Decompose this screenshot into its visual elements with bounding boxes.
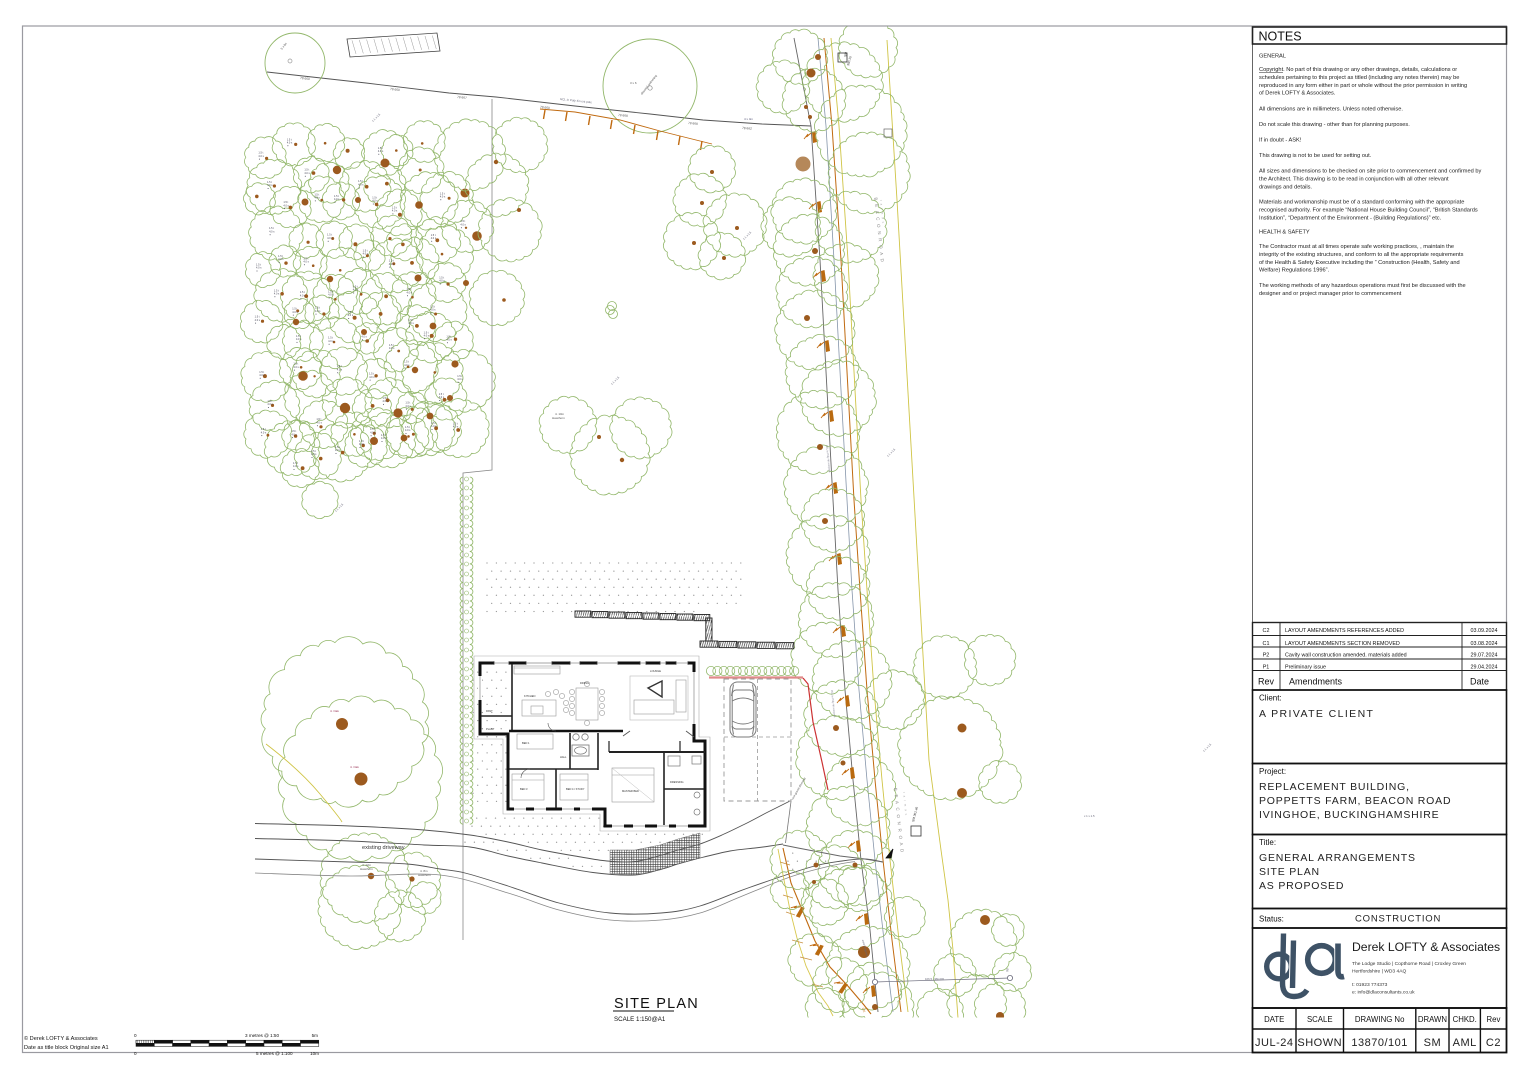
svg-text:4.0 s: 4.0 s — [267, 403, 273, 406]
svg-text:4.0 s: 4.0 s — [259, 374, 265, 377]
svg-text:Title:: Title: — [1259, 838, 1276, 847]
svg-text:4.0 s: 4.0 s — [261, 431, 267, 434]
svg-text:SM: SM — [1424, 1037, 1442, 1049]
svg-text:4.0 s: 4.0 s — [353, 289, 359, 292]
svg-text:Hawthorn: Hawthorn — [552, 416, 565, 420]
svg-text:KITCHEN: KITCHEN — [524, 694, 536, 698]
svg-text:4.0 s: 4.0 s — [296, 338, 302, 341]
svg-text:4.0 s: 4.0 s — [348, 314, 354, 317]
svg-text:This drawing is not to be used: This drawing is not to be used for setti… — [1259, 153, 1372, 159]
svg-text:4 x 4m: 4 x 4m — [744, 117, 754, 121]
svg-text:5 metres @ 1:100: 5 metres @ 1:100 — [256, 1051, 293, 1056]
svg-text:C1: C1 — [1263, 641, 1270, 647]
svg-text:BED 3: BED 3 — [520, 787, 528, 791]
svg-text:All sizes and dimensions to be: All sizes and dimensions to be checked o… — [1259, 169, 1481, 175]
svg-text:13870/101: 13870/101 — [1351, 1037, 1408, 1049]
svg-text:Hawthorn: Hawthorn — [360, 867, 373, 871]
svg-text:4.0 s: 4.0 s — [381, 437, 387, 440]
svg-text:SITE PLAN: SITE PLAN — [614, 996, 699, 1012]
svg-text:4.0 s: 4.0 s — [383, 400, 389, 403]
svg-text:4.0 s: 4.0 s — [405, 405, 411, 408]
svg-text:schedules pertaining to this p: schedules pertaining to this project as … — [1259, 75, 1459, 81]
svg-text:reproduced in any form either: reproduced in any form either in part or… — [1259, 83, 1467, 89]
svg-text:CONSTRUCTION: CONSTRUCTION — [1355, 914, 1441, 925]
svg-text:4.0 s: 4.0 s — [389, 347, 395, 350]
svg-text:DRESSING: DRESSING — [670, 780, 684, 784]
svg-text:Date as title block Original s: Date as title block Original size A1 — [24, 1045, 109, 1051]
svg-text:5m: 5m — [312, 1033, 319, 1038]
svg-text:4.0 s: 4.0 s — [255, 319, 261, 322]
svg-text:IVINGHOE, BUCKINGHAMSHIRE: IVINGHOE, BUCKINGHAMSHIRE — [1259, 809, 1439, 821]
svg-text:106.5 - 98mOD: 106.5 - 98mOD — [925, 977, 944, 981]
svg-text:A PRIVATE CLIENT: A PRIVATE CLIENT — [1259, 708, 1374, 720]
svg-text:4.0 s: 4.0 s — [370, 431, 376, 434]
svg-text:Hawthorn: Hawthorn — [418, 873, 431, 877]
svg-text:designer and or project manage: designer and or project manager prior to… — [1259, 291, 1402, 297]
svg-text:4.0 s: 4.0 s — [269, 230, 275, 233]
svg-text:4.0 s: 4.0 s — [378, 150, 384, 153]
svg-text:4.0 s: 4.0 s — [389, 263, 395, 266]
svg-text:SHOWN: SHOWN — [1297, 1037, 1342, 1049]
svg-text:4.0 s: 4.0 s — [291, 433, 297, 436]
svg-text:3 metres @ 1:50: 3 metres @ 1:50 — [245, 1033, 279, 1038]
svg-text:BED 4 / STUDY: BED 4 / STUDY — [566, 787, 585, 791]
svg-text:4.0 s: 4.0 s — [431, 237, 437, 240]
svg-text:4.0 s: 4.0 s — [315, 310, 321, 313]
svg-text:existing driveway: existing driveway — [362, 845, 405, 851]
svg-text:4.0 s: 4.0 s — [407, 291, 413, 294]
svg-text:Client:: Client: — [1259, 694, 1282, 703]
svg-text:0: 0 — [134, 1051, 137, 1056]
svg-text:DRAWN: DRAWN — [1418, 1015, 1447, 1024]
svg-text:LAYOUT AMENDMENTS REFERENCES A: LAYOUT AMENDMENTS REFERENCES ADDED — [1285, 628, 1404, 634]
svg-text:© Derek LOFTY & Associates: © Derek LOFTY & Associates — [24, 1035, 98, 1042]
svg-text:78 662: 78 662 — [742, 126, 752, 131]
svg-text:4.0 s: 4.0 s — [300, 294, 306, 297]
svg-text:3 x 6: 3 x 6 — [630, 81, 637, 85]
svg-text:4.0 s: 4.0 s — [359, 443, 365, 446]
svg-text:GENERAL ARRANGEMENTS: GENERAL ARRANGEMENTS — [1259, 852, 1416, 864]
svg-text:29.07.2024: 29.07.2024 — [1471, 652, 1498, 658]
svg-text:C2: C2 — [1263, 628, 1270, 634]
svg-text:4.0 s: 4.0 s — [256, 267, 262, 270]
svg-text:4.0 s: 4.0 s — [293, 366, 299, 369]
svg-text:Project:: Project: — [1259, 767, 1286, 776]
svg-text:4.0 s: 4.0 s — [408, 322, 414, 325]
svg-text:4.0 s: 4.0 s — [440, 196, 446, 199]
svg-text:The Lodge Studio | Copthorne: The Lodge Studio | Copthorne Road | Crox… — [1352, 961, 1466, 967]
svg-text:of the Health & Safety Executi: of the Health & Safety Executive includi… — [1259, 260, 1460, 266]
svg-text:Rev: Rev — [1487, 1015, 1501, 1024]
svg-text:MASTER BED: MASTER BED — [622, 789, 639, 793]
svg-text:4.0 s: 4.0 s — [405, 429, 411, 432]
svg-text:NOTES: NOTES — [1259, 30, 1302, 44]
svg-text:4.0 s: 4.0 s — [363, 253, 369, 256]
svg-text:Copyright. No part of this dra: Copyright. No part of this drawing or an… — [1259, 67, 1457, 73]
svg-text:03.09.2024: 03.09.2024 — [1471, 628, 1498, 634]
svg-text:SITE PLAN: SITE PLAN — [1259, 866, 1320, 878]
svg-text:x 1 x 1.5: x 1 x 1.5 — [1084, 814, 1095, 818]
svg-text:Hertfordshire | WD3 4AQ: Hertfordshire | WD3 4AQ — [1352, 969, 1406, 975]
svg-text:Materials and workmanship must: Materials and workmanship must be of a s… — [1259, 200, 1464, 206]
svg-text:4.0 s: 4.0 s — [439, 280, 445, 283]
svg-text:All dimensions are in millimet: All dimensions are in millimeters. Unles… — [1259, 107, 1403, 113]
svg-text:Derek LOFTY & Associates: Derek LOFTY & Associates — [1352, 940, 1500, 954]
svg-text:POPPETTS FARM, BEACON ROAD: POPPETTS FARM, BEACON ROAD — [1259, 795, 1451, 807]
svg-text:4.0 s: 4.0 s — [334, 198, 340, 201]
svg-text:4.0 s: 4.0 s — [457, 378, 463, 381]
svg-text:10m: 10m — [310, 1051, 319, 1056]
svg-text:4.0 s: 4.0 s — [431, 425, 437, 428]
svg-text:integrity of the existing stru: integrity of the existing structures, an… — [1259, 252, 1464, 258]
svg-text:4.0 s: 4.0 s — [372, 200, 378, 203]
svg-text:CHKD.: CHKD. — [1453, 1015, 1477, 1024]
svg-text:4.0 s: 4.0 s — [446, 338, 452, 341]
svg-text:4.0 s: 4.0 s — [328, 294, 334, 297]
svg-text:4.0 s: 4.0 s — [274, 292, 280, 295]
svg-text:4.0 s: 4.0 s — [453, 425, 459, 428]
svg-text:4.0 s: 4.0 s — [361, 336, 367, 339]
svg-text:0: 0 — [134, 1033, 137, 1038]
svg-text:4.0 s: 4.0 s — [369, 376, 375, 379]
svg-text:4.0 s: 4.0 s — [430, 309, 436, 312]
svg-text:4.0 s: 4.0 s — [293, 465, 299, 468]
svg-text:4.0 s: 4.0 s — [439, 396, 445, 399]
svg-text:Rev: Rev — [1258, 677, 1275, 687]
svg-text:The working methods of any haz: The working methods of any hazardous ope… — [1259, 283, 1466, 289]
svg-text:HALL: HALL — [560, 755, 567, 759]
svg-text:recognised authority. For exam: recognised authority. For example “Natio… — [1259, 207, 1478, 213]
svg-text:JUL-24: JUL-24 — [1255, 1037, 1293, 1049]
svg-text:REPLACEMENT BUILDING,: REPLACEMENT BUILDING, — [1259, 781, 1410, 793]
svg-text:Status:: Status: — [1259, 915, 1284, 924]
svg-text:4.0 s: 4.0 s — [335, 449, 341, 452]
svg-text:4. Oak: 4. Oak — [330, 709, 339, 713]
svg-text:Institution”, “Department of t: Institution”, “Department of the Environ… — [1259, 215, 1442, 221]
svg-text:Preliminary issue: Preliminary issue — [1285, 664, 1326, 670]
svg-text:If in doubt - ASK!: If in doubt - ASK! — [1259, 138, 1302, 144]
svg-text:4.0 s: 4.0 s — [304, 172, 310, 175]
svg-text:4.0 s: 4.0 s — [424, 335, 430, 338]
svg-text:PANT: PANT — [486, 709, 493, 713]
svg-text:4.0 s: 4.0 s — [358, 183, 364, 186]
svg-text:LOUNGE: LOUNGE — [650, 669, 661, 673]
svg-text:SCALE 1:150@A1: SCALE 1:150@A1 — [614, 1016, 666, 1023]
svg-text:4.0 s: 4.0 s — [258, 155, 264, 158]
svg-text:AS PROPOSED: AS PROPOSED — [1259, 880, 1344, 892]
svg-text:The Contractor must at all tim: The Contractor must at all times operate… — [1259, 244, 1454, 250]
svg-text:03.08.2024: 03.08.2024 — [1471, 641, 1498, 647]
svg-text:4.0 s: 4.0 s — [404, 364, 410, 367]
svg-text:4.0 s: 4.0 s — [314, 197, 320, 200]
svg-text:P1: P1 — [1263, 664, 1270, 670]
svg-text:t: 01923 774373: t: 01923 774373 — [1352, 982, 1388, 988]
svg-text:4.0 s: 4.0 s — [328, 340, 334, 343]
svg-text:4.0 s: 4.0 s — [327, 237, 333, 240]
svg-text:4.0 s: 4.0 s — [311, 453, 317, 456]
svg-text:PLANT: PLANT — [486, 727, 495, 731]
svg-text:BED 1: BED 1 — [522, 741, 530, 745]
svg-text:4.0 s: 4.0 s — [287, 142, 293, 145]
svg-text:4.0 s: 4.0 s — [316, 421, 322, 424]
svg-text:4.0 s: 4.0 s — [292, 311, 298, 314]
svg-text:P2: P2 — [1263, 652, 1270, 658]
svg-text:4.0 s: 4.0 s — [283, 204, 289, 207]
svg-text:DINING: DINING — [580, 681, 589, 685]
svg-text:4.0 s: 4.0 s — [392, 210, 398, 213]
svg-text:C2: C2 — [1486, 1037, 1501, 1049]
svg-text:GENERAL: GENERAL — [1259, 54, 1286, 60]
svg-text:4. Oak: 4. Oak — [350, 765, 359, 769]
svg-text:Cavity wall construction amend: Cavity wall construction amended. materi… — [1285, 652, 1407, 658]
svg-text:e: info@dlaconsultants.co.uk: e: info@dlaconsultants.co.uk — [1352, 990, 1415, 996]
svg-text:SCALE: SCALE — [1307, 1015, 1333, 1024]
svg-text:Do not scale this drawing - ot: Do not scale this drawing - other than f… — [1259, 122, 1410, 128]
svg-text:4.0 s: 4.0 s — [337, 368, 343, 371]
svg-text:Amendments: Amendments — [1289, 677, 1343, 687]
svg-text:4.0 s: 4.0 s — [303, 260, 309, 263]
svg-text:DRAWING No: DRAWING No — [1355, 1015, 1405, 1024]
svg-text:29.04.2024: 29.04.2024 — [1471, 664, 1498, 670]
svg-text:the Architect. This drawing is: the Architect. This drawing is to be rea… — [1259, 176, 1449, 182]
svg-text:4.0 s: 4.0 s — [278, 258, 284, 261]
svg-text:4.0 s: 4.0 s — [460, 223, 466, 226]
svg-text:HEALTH & SAFETY: HEALTH & SAFETY — [1259, 230, 1310, 236]
svg-text:4.0 s: 4.0 s — [267, 184, 273, 187]
svg-text:Date: Date — [1470, 677, 1489, 687]
svg-text:AML: AML — [1453, 1037, 1477, 1049]
svg-text:of Derek LOFTY & Associates.: of Derek LOFTY & Associates. — [1259, 91, 1336, 97]
svg-text:LAYOUT AMENDMENTS SECTION REMO: LAYOUT AMENDMENTS SECTION REMOVED — [1285, 641, 1400, 647]
svg-text:drawings and details.: drawings and details. — [1259, 184, 1312, 190]
svg-text:Welfare) Regulations 1996”.: Welfare) Regulations 1996”. — [1259, 268, 1330, 274]
svg-text:DATE: DATE — [1264, 1015, 1284, 1024]
